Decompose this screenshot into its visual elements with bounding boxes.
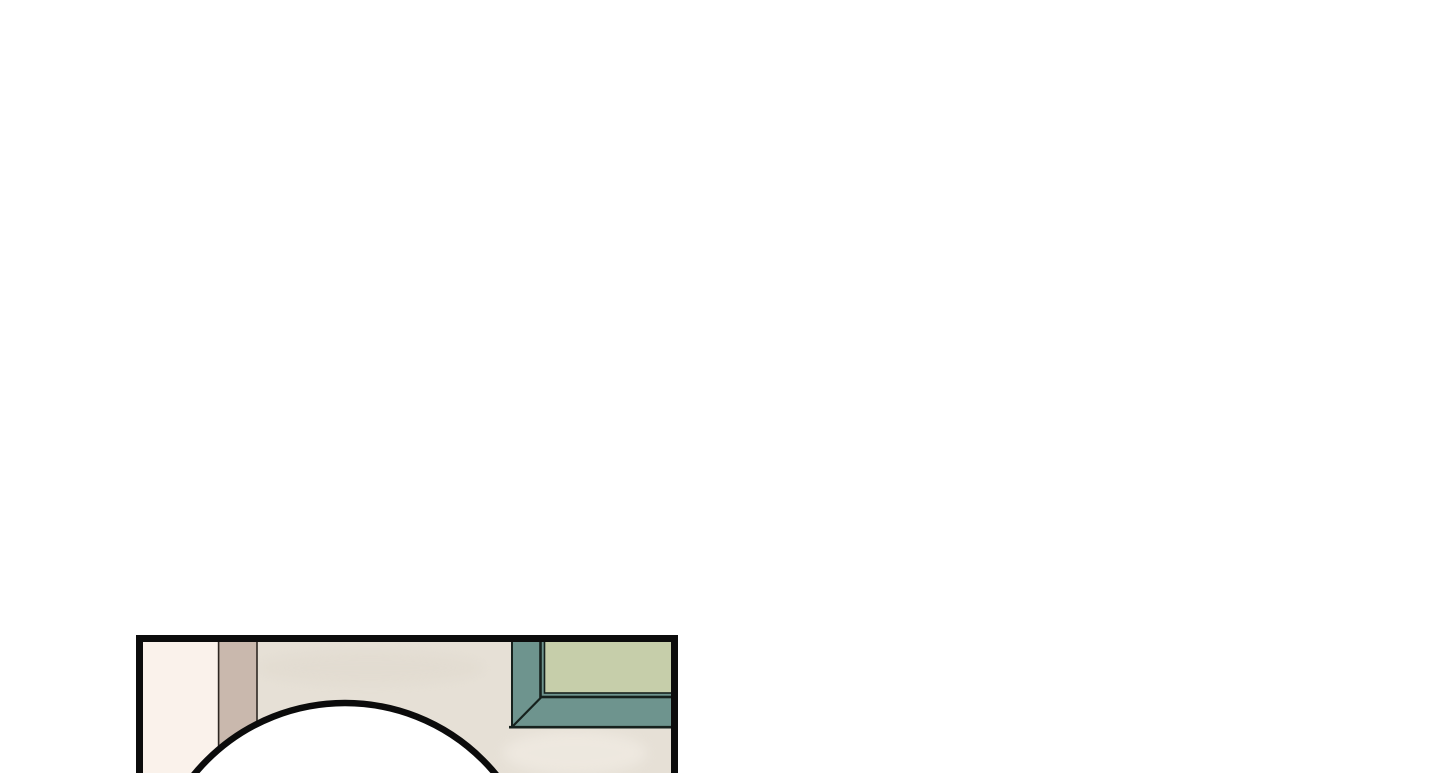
comic-panel [0,0,1440,773]
wall-highlight-blotch [503,731,647,773]
wall-shadow-blotch [255,651,485,685]
comic-page [0,0,1440,773]
